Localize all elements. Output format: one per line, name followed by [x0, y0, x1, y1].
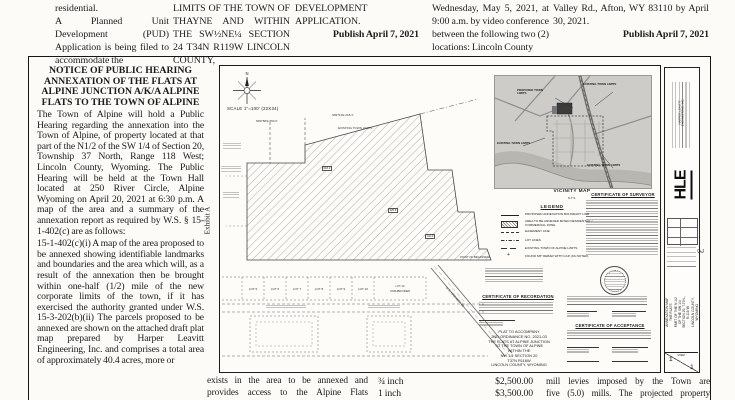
lot-label: UNSUBDIVIDED — [390, 289, 410, 293]
legend-entry-label: FOUND 5/8" REBAR WITH CAP (AS NOTED) — [525, 255, 588, 259]
lot-labels: LOT 5 LOT 6 LOT 7 LOT 8 LOT 9 LOT 10 LOT… — [249, 284, 410, 293]
north-compass-icon: N — [233, 71, 261, 104]
fee-amount: $2,500.00 — [495, 376, 533, 388]
fee-item: ¾ inch — [378, 376, 403, 388]
title-block: HARPER LEAVITT ENGINEERING, INC. HLE ANN… — [664, 67, 700, 373]
signature-label-blur — [612, 313, 636, 317]
legend-entry-label: LOT LINES — [525, 239, 541, 243]
sheet-title: ANNEXATION MAP THE FLATS PART OF THE N 1… — [665, 274, 699, 350]
notice-text-column: NOTICE OF PUBLIC HEARING ANNEXATION OF T… — [37, 66, 204, 366]
legend-entry-label: EASEMENT LINE — [525, 230, 550, 234]
fee-item: 1 inch — [378, 388, 401, 400]
titleblock-info-table — [667, 218, 698, 245]
bottom-column-4: mill levies imposed by the Town are five… — [546, 376, 710, 399]
plat-block-line: LINCOLN COUNTY, WYOMING — [476, 363, 562, 368]
newspaper-column-5: Valley Rd., Afton, WY 83110 by April 30,… — [553, 2, 709, 41]
exhibit-label: Exhibit A — [204, 190, 215, 252]
north-label: N — [245, 71, 248, 76]
signature-line — [567, 361, 599, 362]
signature-line — [612, 347, 648, 348]
publish-date: Publish April 7, 2021 — [553, 28, 709, 41]
lot-label: LOT 9 — [337, 287, 346, 291]
scale-text: SCALE 1"=100' (22X34) — [227, 106, 278, 111]
certificate-recordation-body-blur — [479, 302, 553, 314]
fee-row: 1 inch $3,500.00 — [378, 388, 533, 400]
street-label-blur — [368, 305, 400, 308]
signature-label-blur — [567, 349, 589, 353]
sheet-number: 1 — [669, 356, 673, 363]
company-info: HARPER LEAVITT ENGINEERING, INC. — [665, 72, 699, 152]
notice-title: FLATS TO THE TOWN OF ALPINE — [37, 98, 204, 109]
sheet-title-line: LINCOLN COUNTY, WYOMING — [691, 295, 700, 329]
signature-line — [567, 347, 599, 348]
hle-logo-text: HLE — [672, 171, 692, 200]
sheet-number-box: SHEET 1 1 — [665, 352, 698, 372]
fee-table: ¾ inch $2,500.00 1 inch $3,500.00 — [378, 376, 533, 399]
column-paragraph: DEVELOPMENT APPLICATION. — [295, 2, 419, 28]
pob-label: POINT OF BEGINNING — [460, 256, 490, 259]
body-line: mill levies imposed by the Town are — [546, 376, 710, 388]
sheet-title-line: SECTION 20, T.37N., R.118 W. — [682, 295, 691, 329]
column-paragraph: Wednesday, May 5, 2021, at 9:00 a.m. by … — [432, 2, 549, 54]
plat-map-sheet: N LOT 5 LOT 6 LOT 7 LOT 8 LOT 9 LOT 10 L… — [219, 65, 661, 373]
legend-entry-label: PROPOSED ANNEXATION BOUNDARY LINE — [525, 213, 589, 217]
fee-amount: $3,500.00 — [495, 388, 533, 400]
lot-label: LOT 5 — [249, 287, 258, 291]
proposed-annexation-parcel — [557, 103, 572, 114]
lot-label: LOT 6 — [271, 287, 280, 291]
dashed-line-sample — [501, 232, 519, 233]
body-line: exists in the area to be annexed and — [207, 376, 368, 388]
street-label-blur — [266, 305, 306, 308]
signature-label-blur — [612, 349, 638, 353]
lot-label: LOT 16 — [396, 284, 405, 288]
certificate-acceptance-title: CERTIFICATE OF ACCEPTANCE — [567, 323, 653, 328]
legend-entry-label: EXISTING TOWN OF ALPINE LIMITS — [525, 247, 577, 251]
notice-body-paragraph: 15-1-402(c)(i) A map of the area propose… — [37, 239, 204, 366]
notary-block-blur — [567, 296, 647, 306]
existing-limits-label: EXISTING TOWN LIMITS — [338, 127, 372, 130]
signature-label-blur — [567, 313, 589, 317]
solid-line-sample — [501, 215, 519, 216]
vicinity-label: PROPOSED TOWN LIMITS — [517, 89, 549, 95]
body-line: provides access to the Alpine Flats — [207, 388, 368, 400]
surveyor-seal — [600, 266, 629, 295]
sheet-title-line: ANNEXATION MAP THE FLATS — [665, 295, 674, 329]
vicinity-label: EXISTING TOWN LIMITS — [497, 142, 530, 145]
notice-title: ALPINE JUNCTION A/K/A ALPINE — [37, 87, 204, 98]
certificate-surveyor-title: CERTIFICATE OF SURVEYOR — [586, 192, 660, 197]
illegible-label — [223, 143, 241, 150]
bearing-label: S89°54'E 218.4' — [332, 114, 353, 117]
dimension-tag: 142.0' — [425, 234, 435, 239]
vicinity-label: EXISTING TOWN LIMITS — [583, 83, 616, 86]
dashdot-line-sample — [501, 240, 519, 241]
publish-date: Publish April 7, 2021 — [295, 28, 419, 41]
newspaper-column-3: DEVELOPMENT APPLICATION. Publish April 7… — [295, 2, 419, 41]
certificate-acceptance-body-blur — [567, 330, 651, 340]
lot-label: LOT 10 — [358, 287, 368, 291]
dimension-tag: 325.6' — [388, 208, 398, 213]
signature-line — [567, 311, 597, 312]
rebar-marker-sample: + — [507, 252, 510, 258]
bearing-label: N89°58'E 660.0' — [256, 120, 278, 123]
basis-of-bearing-note-blur — [485, 268, 543, 283]
longdash-line-sample — [501, 248, 519, 249]
lot-label: LOT 7 — [293, 287, 302, 291]
notice-body-paragraph: The Town of Alpine will hold a Public He… — [37, 110, 204, 237]
newspaper-column-4: Wednesday, May 5, 2021, at 9:00 a.m. by … — [432, 2, 549, 54]
company-name: HARPER LEAVITT ENGINEERING, INC. — [679, 95, 686, 129]
sheet-title-line: PART OF THE N 1/2 OF THE SW 1/4 — [673, 295, 682, 329]
lot-label: LOT 8 — [315, 287, 324, 291]
signature-label-blur — [479, 322, 503, 326]
notice-box: NOTICE OF PUBLIC HEARING ANNEXATION OF T… — [28, 56, 711, 400]
illegible-label — [223, 192, 239, 199]
annexation-parcel — [247, 114, 491, 260]
certificate-surveyor-body-blur — [586, 200, 658, 256]
sheet-of-number: 1 — [690, 364, 694, 371]
bottom-column-2: exists in the area to be annexed and pro… — [207, 376, 368, 399]
page-number: 3 — [695, 249, 705, 254]
certificate-recordation-title: CERTIFICATE OF RECORDATION — [479, 294, 557, 299]
notice-title: NOTICE OF PUBLIC HEARING — [37, 66, 204, 77]
revision-rows — [667, 247, 696, 271]
signature-line — [612, 361, 648, 362]
signature-line — [479, 320, 515, 321]
body-line: five (5.0) mills. The projected property — [546, 388, 710, 400]
column-paragraph: Valley Rd., Afton, WY 83110 by April 30,… — [553, 2, 709, 28]
hle-logo: HLE — [665, 156, 699, 214]
vicinity-label: EXISTING TOWN LIMITS — [587, 164, 620, 167]
hatch-area-sample — [501, 221, 518, 229]
plat-accompany-block: PLAT TO ACCOMPANY 2ND ORDINANCE NO. 2021… — [476, 330, 562, 368]
dimension-tag: 618.2' — [322, 166, 332, 171]
signature-line — [612, 311, 646, 312]
illegible-label — [221, 166, 241, 173]
vicinity-map: EXISTING TOWN LIMITS PROPOSED TOWN LIMIT… — [494, 75, 652, 189]
fee-row: ¾ inch $2,500.00 — [378, 376, 533, 388]
newspaper-page: residential. A Planned Unit Development … — [0, 0, 735, 400]
column-paragraph: residential. — [55, 2, 169, 15]
